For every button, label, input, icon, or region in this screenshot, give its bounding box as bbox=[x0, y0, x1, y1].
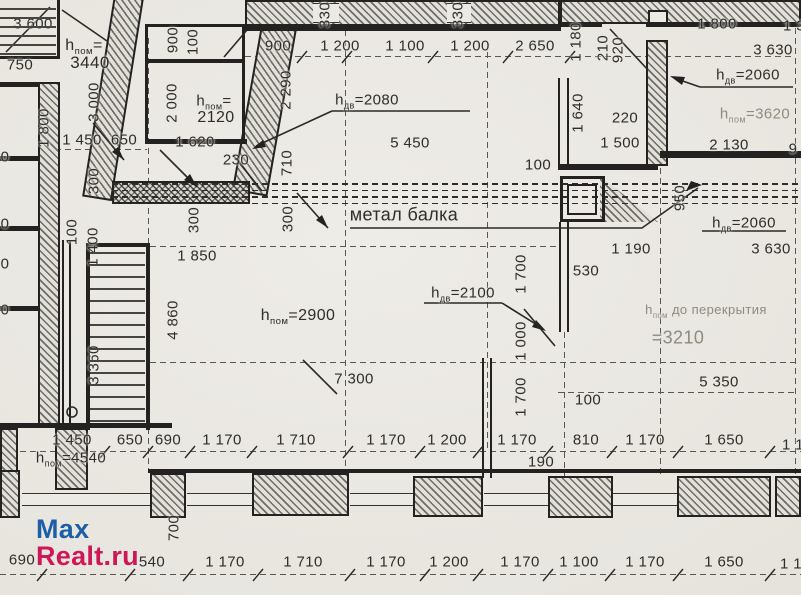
dimension-label: 1 1 bbox=[780, 556, 801, 573]
dimension-label: 3 630 bbox=[751, 241, 791, 258]
dimension-label: 1 200 bbox=[450, 38, 490, 55]
stair-tread bbox=[0, 35, 56, 37]
stair-tread bbox=[90, 252, 145, 254]
height-label: hпом до перекрытия bbox=[645, 302, 767, 320]
watermark-line2: Realt.ru bbox=[36, 543, 139, 570]
dimension-label: 900 bbox=[265, 38, 291, 55]
dimension-label: 2 290 bbox=[278, 70, 295, 110]
dimension-label: 4 860 bbox=[165, 300, 182, 340]
dimension-label: =3210 bbox=[652, 328, 705, 349]
dimension-label: 540 bbox=[139, 554, 165, 571]
dimension-label: 1 710 bbox=[276, 432, 316, 449]
stair-tread bbox=[90, 408, 145, 410]
stair-tread bbox=[0, 8, 56, 10]
dimension-label: 1 450 bbox=[52, 432, 92, 449]
dimension-label: 1 170 bbox=[366, 432, 406, 449]
dimension-label: 1 450 bbox=[62, 132, 102, 149]
stair-tread bbox=[90, 276, 145, 278]
stair-tread bbox=[90, 312, 145, 314]
stair-tread bbox=[90, 360, 145, 362]
dimension-label: 300 bbox=[186, 207, 203, 233]
dimension-label: 1 650 bbox=[704, 554, 744, 571]
dimension-label: 1 500 bbox=[600, 135, 640, 152]
dimension-label: 650 bbox=[117, 432, 143, 449]
dimension-label: 3 000 bbox=[86, 82, 103, 122]
dimension-label: 810 bbox=[573, 432, 599, 449]
height-label: hпом=4540 bbox=[36, 450, 106, 469]
dimension-label: 650 bbox=[111, 132, 137, 149]
dimension-label: 330 bbox=[450, 2, 467, 28]
dimension-label: 9 bbox=[789, 141, 798, 158]
dimension-label: 1 850 bbox=[177, 248, 217, 265]
plan-linework bbox=[0, 0, 801, 595]
dimension-label: 1 000 bbox=[513, 321, 530, 361]
dimension-label: 100 bbox=[525, 157, 551, 174]
height-label: hдв=2080 bbox=[335, 92, 399, 111]
dimension-label: 5 450 bbox=[390, 135, 430, 152]
watermark-logo: Max Realt.ru bbox=[36, 516, 139, 570]
dimension-label: 1 170 bbox=[625, 432, 665, 449]
dimension-label: 190 bbox=[528, 454, 554, 471]
dimension-label: 2 000 bbox=[164, 83, 181, 123]
dimension-label: 3440 bbox=[70, 53, 109, 73]
stair-tread bbox=[90, 336, 145, 338]
dimension-label: 300 bbox=[280, 206, 297, 232]
beam-label: метал балка bbox=[350, 205, 458, 226]
dimension-label: 0 bbox=[1, 302, 10, 319]
dimension-label: 100 bbox=[575, 392, 601, 409]
height-label: hдв=2060 bbox=[712, 215, 776, 234]
stair-tread bbox=[90, 348, 145, 350]
dimension-label: 1 100 bbox=[385, 38, 425, 55]
dimension-label: 1 170 bbox=[625, 554, 665, 571]
dimension-label: 100 bbox=[185, 29, 202, 55]
dimension-label: 950 bbox=[672, 185, 689, 211]
dimension-label: 0 bbox=[1, 216, 10, 233]
height-label: hпом=3620 bbox=[720, 106, 790, 125]
dimension-label: 1 170 bbox=[366, 554, 406, 571]
stair-tread bbox=[0, 26, 56, 28]
dimension-label: 1 3 bbox=[783, 18, 801, 35]
dimension-label: 1 170 bbox=[497, 432, 537, 449]
dimension-label: 0 bbox=[1, 256, 10, 273]
dimension-label: 1 700 bbox=[513, 254, 530, 294]
dimension-label: 1 400 bbox=[85, 227, 102, 267]
height-label: hдв=2100 bbox=[431, 285, 495, 304]
dimension-label: 7 300 bbox=[334, 371, 374, 388]
dimension-label: 2 650 bbox=[515, 38, 555, 55]
watermark-line1: Max bbox=[36, 516, 139, 543]
dimension-label: 690 bbox=[155, 432, 181, 449]
dimension-label: 330 bbox=[317, 2, 334, 28]
dimension-label: 1 800 bbox=[697, 16, 737, 33]
dimension-label: 1 170 bbox=[202, 432, 242, 449]
dimension-label: 1 1 bbox=[782, 437, 801, 454]
dimension-label: 230 bbox=[223, 152, 249, 169]
dimension-label: 0 bbox=[1, 149, 10, 166]
dimension-label: 300 bbox=[86, 168, 103, 194]
stair-tread bbox=[90, 300, 145, 302]
dimension-label: 1 200 bbox=[429, 554, 469, 571]
dimension-label: 1 170 bbox=[205, 554, 245, 571]
stair-tread bbox=[90, 264, 145, 266]
stair-tread bbox=[90, 324, 145, 326]
dimension-label: 220 bbox=[612, 110, 638, 127]
dimension-label: 530 bbox=[573, 263, 599, 280]
dimension-label: 920 bbox=[610, 37, 627, 63]
stair-tread bbox=[90, 420, 145, 422]
floorplan-photo: Max Realt.ru 3 6007501 8003 0001 450650h… bbox=[0, 0, 801, 595]
dimension-label: 710 bbox=[279, 150, 296, 176]
dimension-label: 1 180 bbox=[568, 22, 585, 62]
dimension-label: 900 bbox=[165, 27, 182, 53]
dimension-label: 1 200 bbox=[320, 38, 360, 55]
dimension-label: 2 130 bbox=[709, 137, 749, 154]
dimension-label: 3 360 bbox=[86, 345, 103, 385]
dimension-label: 5 350 bbox=[699, 374, 739, 391]
dimension-label: 750 bbox=[7, 57, 33, 74]
dimension-label: 1 170 bbox=[500, 554, 540, 571]
height-label: hдв=2060 bbox=[716, 67, 780, 86]
dimension-label: 100 bbox=[64, 219, 81, 245]
dimension-label: 1 650 bbox=[704, 432, 744, 449]
height-label: hпом=2900 bbox=[261, 307, 336, 327]
dimension-label: 1 710 bbox=[283, 554, 323, 571]
dimension-label: 700 bbox=[166, 515, 183, 541]
dimension-label: 1 640 bbox=[570, 93, 587, 133]
stair-tread bbox=[90, 288, 145, 290]
dimension-label: 690 bbox=[9, 552, 35, 569]
dimension-label: 1 700 bbox=[513, 377, 530, 417]
dimension-label: 1 620 bbox=[175, 134, 215, 151]
stair-tread bbox=[0, 53, 56, 55]
stair-tread bbox=[0, 44, 56, 46]
stair-tread bbox=[90, 384, 145, 386]
dimension-label: 1 190 bbox=[611, 241, 651, 258]
stair-tread bbox=[0, 17, 56, 19]
dimension-label: 1 100 bbox=[559, 554, 599, 571]
dimension-label: 1 200 bbox=[427, 432, 467, 449]
dimension-label: 3 630 bbox=[753, 42, 793, 59]
dimension-label: 2120 bbox=[197, 109, 234, 127]
stair-tread bbox=[90, 372, 145, 374]
stair-tread bbox=[90, 396, 145, 398]
dimension-label: 1 800 bbox=[36, 108, 53, 148]
